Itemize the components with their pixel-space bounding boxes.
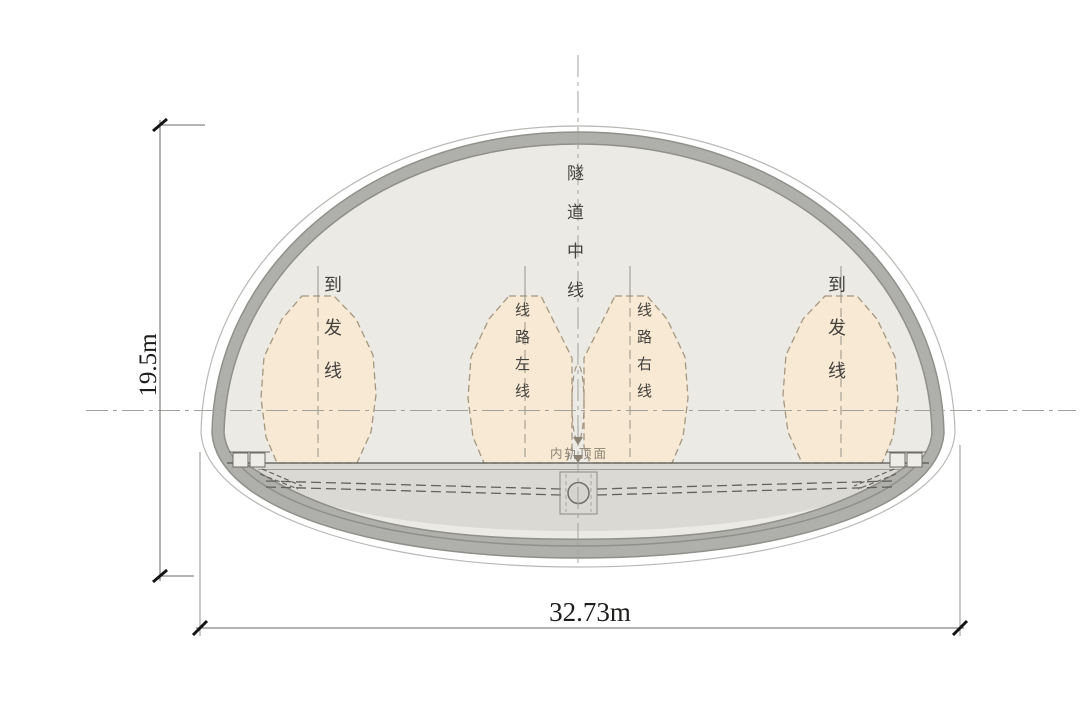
route-left-line-label: 线路左线 [511, 302, 532, 410]
arrival-departure-right-label: 到发线 [823, 275, 849, 404]
tunnel-cross-section-diagram: 隧道中线 到发线 线路左线 线路右线 到发线 内轨顶面 32.73m 19.5m [0, 0, 1085, 711]
inner-rail-top-surface-label: 内轨顶面 [547, 443, 611, 462]
width-dimension-text: 32.73m [490, 597, 690, 628]
tunnel-centerline-label: 隧道中线 [561, 164, 586, 320]
arrival-departure-left-label: 到发线 [319, 275, 345, 404]
height-dimension-text: 19.5m [135, 295, 163, 435]
route-right-line-label: 线路右线 [633, 302, 654, 410]
